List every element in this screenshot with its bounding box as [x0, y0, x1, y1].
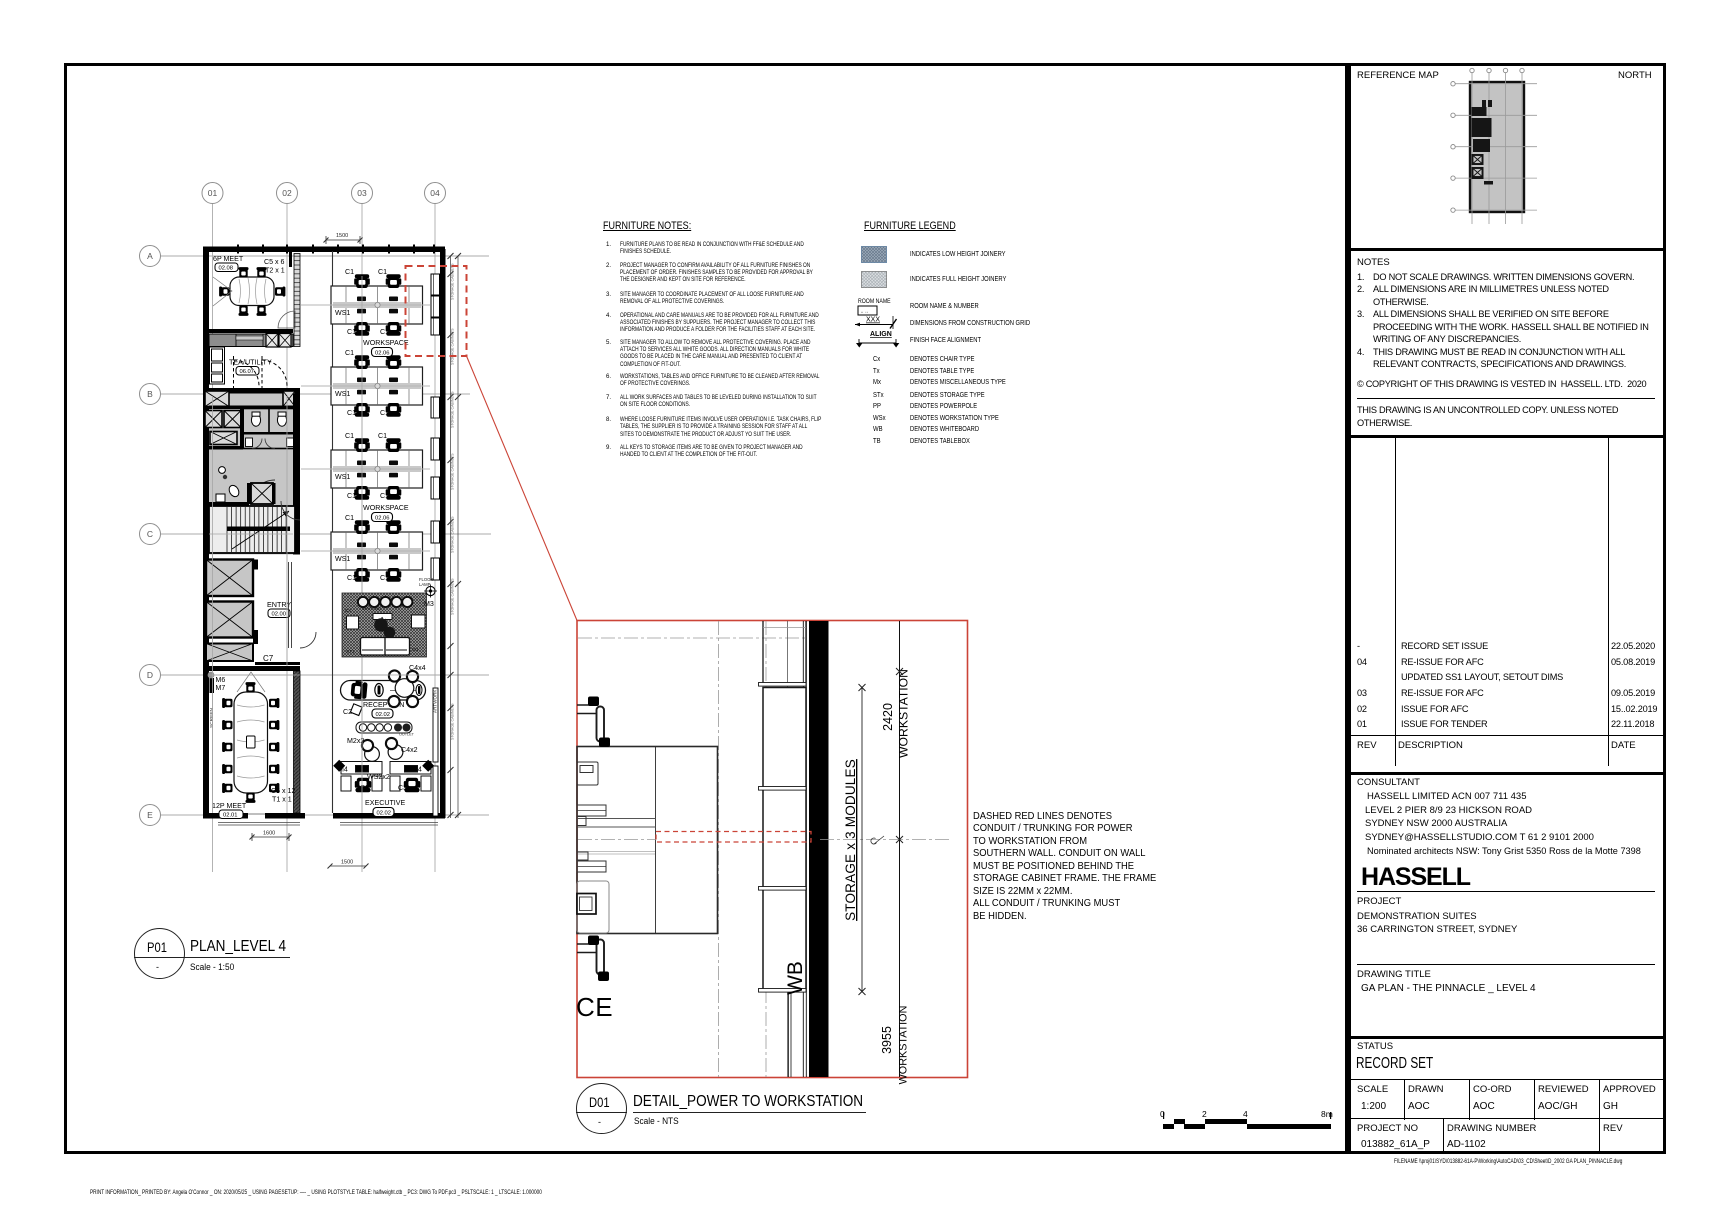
- svg-text:WORKSTATION: WORKSTATION: [898, 1006, 910, 1085]
- svg-text:02: 02: [282, 188, 292, 198]
- svg-text:C5 x 12: C5 x 12: [271, 787, 296, 795]
- svg-text:ENTRY: ENTRY: [267, 600, 291, 609]
- svg-text:C1: C1: [345, 349, 354, 357]
- svg-text:C4x2: C4x2: [401, 746, 418, 754]
- svg-text:STORAGE CABINETS: STORAGE CABINETS: [451, 328, 455, 365]
- svg-text:STORAGE CABINETS: STORAGE CABINETS: [451, 703, 455, 740]
- svg-text:A: A: [147, 251, 153, 261]
- svg-text:STORAGE CABINETS: STORAGE CABINETS: [451, 391, 455, 428]
- svg-text:WORKSPACE: WORKSPACE: [363, 504, 409, 512]
- svg-text:C1: C1: [347, 409, 356, 417]
- svg-text:TEA/UTILITY: TEA/UTILITY: [229, 358, 272, 367]
- svg-text:WS1: WS1: [335, 390, 350, 398]
- svg-text:C1: C1: [380, 409, 389, 417]
- svg-text:M7: M7: [216, 685, 226, 692]
- svg-text:ST1: ST1: [346, 649, 355, 654]
- svg-text:STORAGE CABINETS: STORAGE CABINETS: [451, 516, 455, 553]
- svg-text:C1: C1: [345, 514, 354, 522]
- svg-text:WS1: WS1: [335, 309, 350, 317]
- svg-text:03: 03: [357, 188, 367, 198]
- svg-text:C1: C1: [378, 432, 387, 440]
- svg-text:M4: M4: [412, 766, 422, 774]
- svg-text:WORKSTATION: WORKSTATION: [897, 669, 911, 758]
- svg-text:OUTLET: OUTLET: [399, 733, 415, 737]
- svg-text:B: B: [147, 389, 153, 399]
- svg-text:STORAGE x 3 MODULES: STORAGE x 3 MODULES: [843, 759, 858, 921]
- svg-text:C1: C1: [347, 492, 356, 500]
- svg-text:02.01: 02.01: [223, 813, 238, 819]
- svg-text:D: D: [147, 670, 153, 680]
- svg-text:2420: 2420: [881, 703, 895, 731]
- svg-text:C3: C3: [398, 784, 407, 792]
- svg-text:C1: C1: [347, 328, 356, 336]
- svg-text:02.06: 02.06: [375, 351, 390, 357]
- svg-text:SCREEN: SCREEN: [209, 707, 215, 728]
- svg-text:CE: CE: [576, 992, 613, 1022]
- svg-text:E: E: [147, 810, 153, 820]
- svg-text:2: 2: [1202, 1109, 1207, 1119]
- svg-text:1500: 1500: [341, 860, 353, 866]
- svg-text:02.02: 02.02: [376, 712, 391, 718]
- svg-text:ARTWORK: ARTWORK: [433, 689, 438, 713]
- svg-text:WS1: WS1: [335, 555, 350, 563]
- svg-text:C1: C1: [345, 268, 354, 276]
- svg-text:C4x4: C4x4: [409, 664, 426, 672]
- svg-text:WS1: WS1: [335, 473, 350, 481]
- svg-text:M1: M1: [412, 647, 419, 652]
- svg-text:M6: M6: [216, 677, 226, 684]
- svg-text:WORKSPACE: WORKSPACE: [363, 339, 409, 347]
- svg-text:WS2x2: WS2x2: [367, 773, 390, 781]
- svg-text:C5 x 6: C5 x 6: [264, 258, 285, 266]
- svg-text:C2: C2: [343, 708, 352, 716]
- svg-text:C7: C7: [263, 654, 274, 663]
- svg-text:0: 0: [1160, 1109, 1165, 1119]
- svg-text:C3: C3: [360, 784, 369, 792]
- svg-text:WAITING: WAITING: [362, 606, 382, 611]
- svg-text:M4: M4: [338, 766, 348, 774]
- svg-text:STORAGE CABINETS: STORAGE CABINETS: [451, 578, 455, 615]
- svg-text:04: 04: [430, 188, 440, 198]
- svg-text:C4: C4: [345, 608, 351, 613]
- svg-text:C1: C1: [380, 492, 389, 500]
- svg-text:C1: C1: [380, 328, 389, 336]
- svg-text:T1 x 1: T1 x 1: [272, 796, 292, 804]
- svg-text:STORAGE CABINETS: STORAGE CABINETS: [451, 263, 455, 300]
- svg-text:M3: M3: [424, 600, 434, 608]
- svg-text:EXECUTIVE: EXECUTIVE: [365, 799, 405, 807]
- svg-text:1600: 1600: [263, 831, 275, 837]
- svg-text:12P MEET: 12P MEET: [212, 802, 247, 810]
- svg-text:02.00: 02.00: [272, 612, 287, 618]
- svg-text:02.02: 02.02: [377, 811, 392, 817]
- svg-text:T2 x 1: T2 x 1: [265, 267, 285, 275]
- svg-text:1500: 1500: [336, 233, 348, 239]
- svg-text:C1: C1: [347, 574, 356, 582]
- svg-text:WB: WB: [784, 961, 807, 995]
- svg-text:4: 4: [1243, 1109, 1248, 1119]
- svg-text:C1: C1: [378, 268, 387, 276]
- svg-text:02.06: 02.06: [375, 516, 390, 522]
- svg-text:3955: 3955: [880, 1026, 894, 1054]
- svg-text:C: C: [147, 529, 153, 539]
- svg-text:C1: C1: [380, 574, 389, 582]
- svg-text:8m: 8m: [1321, 1109, 1333, 1119]
- svg-text:06.07: 06.07: [240, 369, 255, 375]
- svg-text:01: 01: [208, 188, 218, 198]
- svg-text:STORAGE CABINETS: STORAGE CABINETS: [451, 453, 455, 490]
- svg-text:02.08: 02.08: [219, 266, 234, 272]
- svg-text:6P MEET: 6P MEET: [213, 255, 244, 263]
- svg-text:LAMP: LAMP: [419, 582, 431, 587]
- svg-text:C1: C1: [345, 432, 354, 440]
